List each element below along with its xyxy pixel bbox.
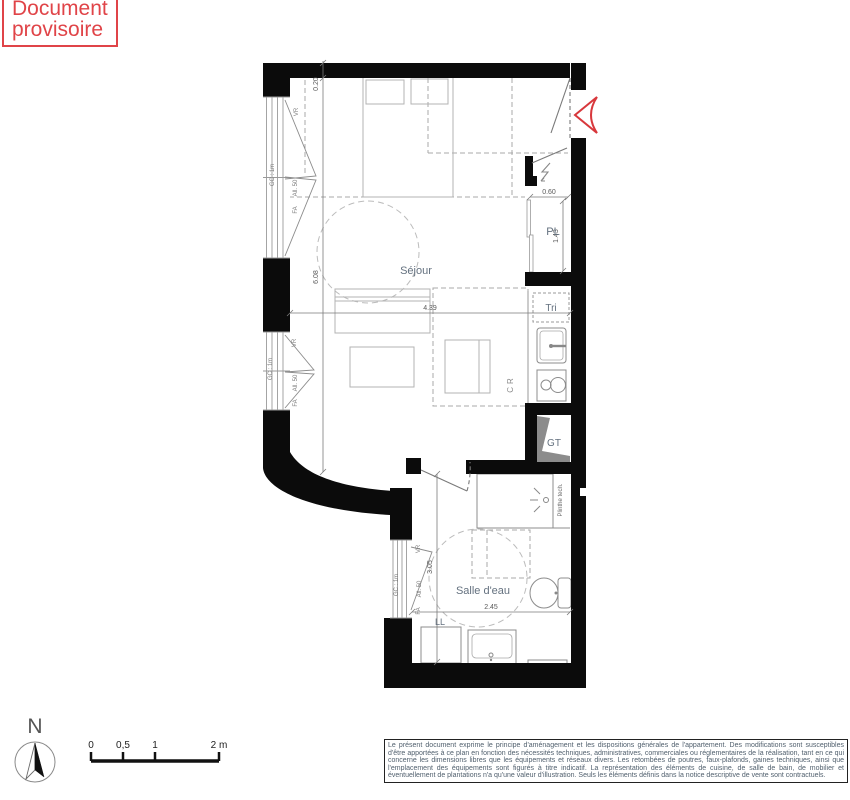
scale-tick-1: 1 bbox=[152, 740, 158, 751]
window-label-vr: VR bbox=[416, 544, 422, 553]
entrance-arrow-icon bbox=[575, 97, 597, 133]
entrance-door-leaf bbox=[551, 78, 570, 133]
sejour-furniture bbox=[335, 75, 490, 393]
coffee-table bbox=[350, 347, 414, 387]
compass-needle-outline bbox=[26, 743, 35, 779]
window-label-fa: FA bbox=[416, 607, 422, 614]
floor-plan-page: { "stamp": {"line1": "Document", "line2"… bbox=[0, 0, 850, 800]
dimension-labels: 0.20 6.08 4.39 3.05 2.45 0.60 1.43 bbox=[313, 77, 560, 611]
bathroom-door-leaf bbox=[421, 470, 467, 491]
pillow bbox=[411, 79, 448, 104]
shower bbox=[477, 474, 553, 528]
legal-disclaimer: Le présent document exprime le principe … bbox=[384, 739, 848, 783]
dim-placard-width: 0.60 bbox=[542, 189, 556, 196]
electrical-panel-icon bbox=[541, 163, 550, 181]
window-label-gc: GC : 1m bbox=[270, 164, 276, 186]
dim-sejour-depth: 6.08 bbox=[313, 270, 320, 284]
label-salle-deau: Salle d'eau bbox=[456, 585, 510, 597]
north-compass: N bbox=[15, 715, 55, 782]
north-label: N bbox=[27, 715, 42, 738]
compass-needle-fill bbox=[35, 743, 44, 777]
scale-tick-2m: 2 m bbox=[211, 740, 228, 751]
vestibule-door-leaf bbox=[532, 148, 567, 163]
toilet-tank bbox=[558, 578, 571, 608]
window-label-fa: FA bbox=[293, 206, 299, 213]
window-label-vr: VR bbox=[294, 107, 300, 116]
floor-plan-drawing: 0.20 6.08 4.39 3.05 2.45 0.60 1.43 VR GC… bbox=[0, 0, 850, 800]
window-label-vr: VR bbox=[292, 338, 298, 347]
label-plinthe-technique: Plinthe tech. bbox=[558, 483, 564, 516]
armchair bbox=[445, 340, 490, 393]
bed bbox=[363, 75, 453, 197]
scale-tick-05: 0,5 bbox=[116, 740, 130, 751]
label-tri: Tri bbox=[545, 303, 556, 314]
bathroom-fixtures bbox=[421, 474, 571, 667]
toilet-bowl bbox=[530, 578, 558, 608]
window-label-gc: GC : 1m bbox=[394, 574, 400, 596]
window-label-allege: All. 50 bbox=[417, 580, 423, 597]
window-label-gc: GC : 1m bbox=[268, 358, 274, 380]
dim-salle-deau-width: 2.45 bbox=[484, 604, 498, 611]
scale-bar: 0 0,5 1 2 m bbox=[88, 740, 227, 761]
label-sejour: Séjour bbox=[400, 265, 432, 277]
window-label-allege: All. 50 bbox=[293, 374, 299, 391]
window-label-fa: FA bbox=[293, 399, 299, 406]
washing-machine bbox=[421, 627, 461, 663]
dim-sejour-width: 4.39 bbox=[423, 305, 437, 312]
placard bbox=[527, 200, 533, 272]
dim-wall-offset: 0.20 bbox=[313, 77, 320, 91]
pillow bbox=[366, 80, 404, 104]
sofa bbox=[335, 289, 430, 333]
label-placard: PL bbox=[546, 226, 559, 238]
vanity bbox=[468, 630, 516, 664]
windows bbox=[263, 97, 432, 618]
label-gaine-technique: GT bbox=[547, 438, 561, 449]
window-label-allege: All. 50 bbox=[293, 179, 299, 196]
scale-tick-0: 0 bbox=[88, 740, 94, 751]
label-lave-linge: LL bbox=[435, 617, 445, 627]
label-cuisine-refrigerateur: CR bbox=[506, 375, 515, 393]
dim-salle-deau-depth: 3.05 bbox=[427, 560, 434, 574]
